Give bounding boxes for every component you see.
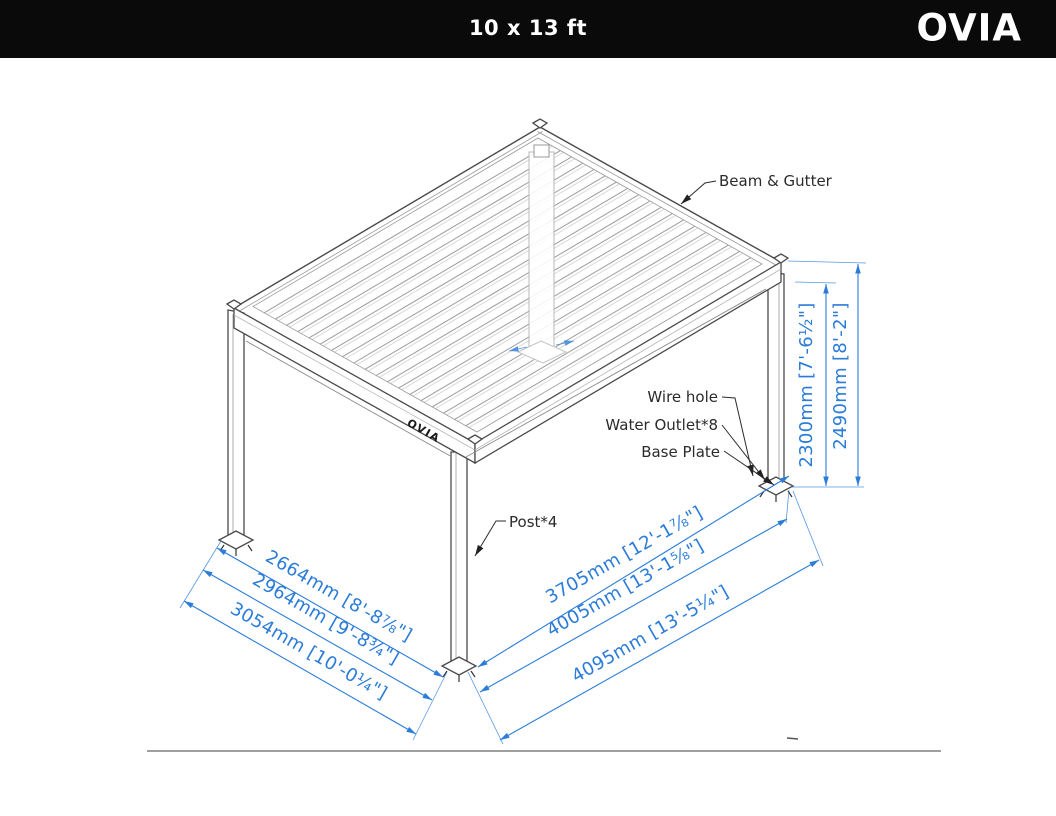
post-left	[219, 310, 253, 556]
label-water-outlet: Water Outlet*8	[605, 416, 718, 434]
brand-logo: OVIA	[917, 7, 1023, 50]
post-front	[442, 452, 476, 682]
header-bar: 10 x 13 ft OVIA	[0, 0, 1056, 58]
dim-height-2: 2490mm [8'-2"]	[830, 302, 851, 449]
leader-beam-gutter	[681, 181, 716, 204]
dim-height-1: 2300mm [7'-6½"]	[796, 302, 817, 467]
pergola-diagram: OVIA 2664mm [8'-8⅞"] 2964mm [9'-8	[0, 0, 1056, 816]
leader-base-plate	[724, 451, 774, 485]
label-beam-gutter: Beam & Gutter	[719, 172, 833, 190]
leader-post	[475, 521, 506, 556]
label-wire-hole: Wire hole	[647, 388, 718, 406]
pergola-spec-sheet: 10 x 13 ft OVIA	[0, 0, 1056, 816]
leader-wire-hole	[722, 397, 753, 476]
post-right	[759, 272, 793, 502]
base-plate-left	[219, 531, 253, 549]
label-post: Post*4	[509, 513, 557, 531]
base-plate-right	[759, 477, 793, 495]
label-base-plate: Base Plate	[641, 443, 720, 461]
tick-mark	[787, 738, 798, 739]
page-title: 10 x 13 ft	[0, 16, 1056, 40]
